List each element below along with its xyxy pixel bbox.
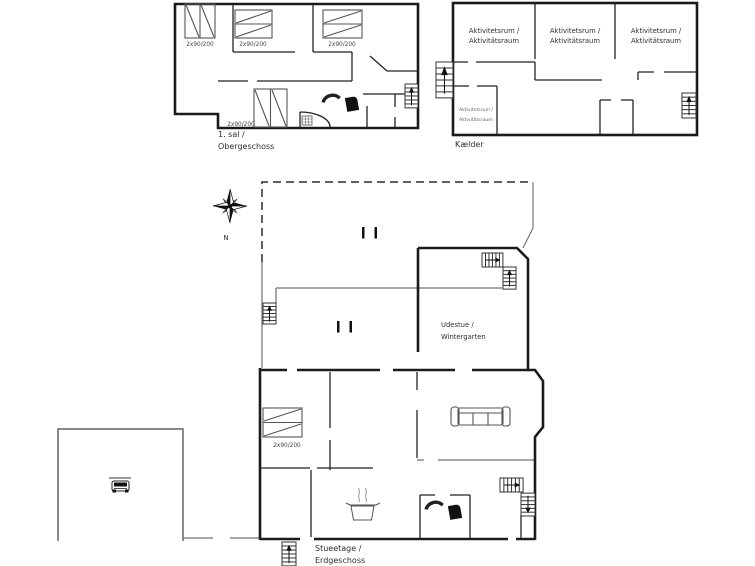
basement-interior-walls (453, 3, 697, 135)
stairs-icon (682, 93, 696, 118)
room-label-small: Aktivitätsraum (459, 117, 493, 123)
upper-interior-walls (218, 4, 418, 127)
armchair-icon (425, 498, 442, 516)
room-label: Aktivitetsrum / (550, 27, 601, 35)
bed-icon (254, 89, 287, 127)
bed-icon (235, 10, 272, 38)
upper-floor-plan: 2x90/200 2x90/200 2x90/200 2x90/200 1. s… (175, 4, 418, 151)
upper-floor-label-line1: 1. sal / (218, 130, 245, 139)
stairs-icon (482, 253, 503, 267)
car-icon (109, 478, 131, 493)
room-label: Aktivitetsrum / (631, 27, 682, 35)
ground-floor-plan: 2x90/200 Udestue / Wintergarten Stueetag… (183, 182, 543, 566)
room-label: Aktivitätsraum (631, 37, 681, 45)
washbasin-icon (302, 116, 312, 125)
bed-size-label: 2x90/200 (227, 122, 255, 128)
basement-label: Kælder (455, 140, 484, 149)
stairs-icon (521, 493, 535, 516)
bed-icon (323, 10, 362, 38)
conservatory-walls (418, 248, 528, 370)
stairs-icon (405, 84, 418, 108)
stairs-icon (500, 478, 523, 492)
terrace-dashed-line (262, 182, 533, 262)
room-label: Aktivitetsrum / (469, 27, 520, 35)
conservatory-label-line2: Wintergarten (441, 333, 486, 341)
carport (58, 429, 183, 541)
room-label: Aktivitätsraum (469, 37, 519, 45)
upper-floor-label-line2: Obergeschoss (218, 142, 274, 151)
basement-outer-walls (453, 3, 697, 135)
stairs-icon (263, 303, 276, 324)
armchair-icon (322, 91, 339, 109)
stairs-icon (282, 542, 296, 566)
armchair-filled-icon (448, 504, 462, 520)
bed-size-label: 2x90/200 (186, 42, 214, 48)
room-label: Aktivitätsraum (550, 37, 600, 45)
ground-interior-walls (260, 372, 521, 539)
stairs-icon (436, 62, 453, 98)
sofa-icon (451, 407, 510, 426)
window-marks (337, 227, 377, 333)
floor-plan-canvas: 2x90/200 2x90/200 2x90/200 2x90/200 1. s… (0, 0, 755, 566)
basement-plan: Aktivitetsrum / Aktivitätsraum Aktivitet… (436, 3, 697, 149)
terrace-edge-line (523, 182, 533, 248)
compass-north-label: N (223, 234, 228, 242)
bed-size-label: 2x90/200 (239, 42, 267, 48)
bed-icon (185, 4, 215, 38)
cooking-pot-icon (346, 488, 380, 520)
conservatory-label-line1: Udestue / (441, 321, 474, 329)
ground-floor-label-line1: Stueetage / (315, 544, 362, 553)
bed-icon (263, 408, 302, 437)
room-label-small: Aktivitetsrum / (459, 107, 493, 113)
stairs-icon (503, 267, 516, 289)
compass-rose: N (213, 189, 247, 242)
ground-outer-walls (260, 368, 543, 540)
compass-rose-icon (213, 189, 247, 223)
floorplan-page: 2x90/200 2x90/200 2x90/200 2x90/200 1. s… (0, 0, 755, 566)
armchair-filled-icon (345, 96, 359, 112)
ground-floor-label-line2: Erdgeschoss (315, 556, 365, 565)
bed-size-label: 2x90/200 (328, 42, 356, 48)
bed-size-label: 2x90/200 (273, 443, 301, 449)
